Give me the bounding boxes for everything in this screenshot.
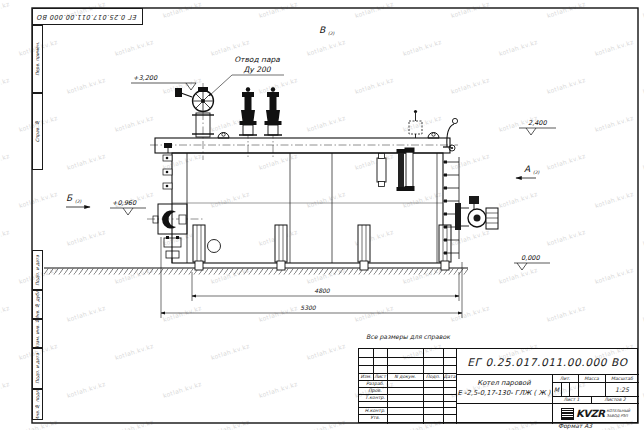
- dimension-5300: 5300: [161, 237, 462, 318]
- reference-note: Все размеры для справок: [366, 333, 450, 340]
- margin-box-perv-primen: Перв. примен.: [32, 25, 43, 93]
- svg-text:Ду 200: Ду 200: [244, 65, 272, 74]
- drawing-sheet: kotlah.kv.kzkotlah.kv.kzkotlah.kv.kzkotl…: [0, 0, 644, 430]
- svg-text:4800: 4800: [314, 287, 330, 294]
- top-stamp-number: ЕГ 0.25.017.011.00.000 ВО: [37, 13, 137, 21]
- svg-text:Отвод пара: Отвод пара: [234, 55, 280, 64]
- row-utv: Утв.: [359, 414, 389, 421]
- svg-text:+0,960: +0,960: [112, 199, 137, 207]
- manhole: [208, 240, 221, 253]
- org-subtitle: КОТЕЛЬНЫЙ ЗАВОД РЭП: [606, 409, 630, 417]
- margin-box-inv-dubl: Инв. № дубл.: [32, 290, 43, 319]
- sheet-total: Листов 2: [591, 396, 639, 403]
- organization-cell: KVZR КОТЕЛЬНЫЙ ЗАВОД РЭП: [552, 403, 639, 424]
- elevation-3200: +3,200: [131, 74, 196, 90]
- svg-text:(2): (2): [533, 170, 540, 175]
- product-name: Котел паровой Е -2,5-0,17-130- ГЛЖ ( Ж ): [456, 374, 552, 403]
- svg-text:2,400: 2,400: [528, 119, 547, 127]
- document-number: ЕГ 0.25.017.011.00.000 ВО: [456, 349, 639, 374]
- row-prov: Пров.: [359, 387, 389, 394]
- kvzr-logo-icon: [561, 408, 574, 420]
- kvzr-logo-text: KVZR: [576, 408, 604, 419]
- lit-value: М: [552, 382, 561, 396]
- col-ndokum: N докум.: [387, 373, 423, 380]
- steam-outlet-valve: [175, 87, 214, 137]
- sheet-number: Лист 1: [552, 396, 591, 403]
- margin-box-podp-data-2: Подп. и дата: [32, 348, 43, 389]
- feed-pump: [455, 196, 498, 230]
- svg-text:(2): (2): [328, 31, 335, 36]
- svg-text:Б: Б: [66, 193, 73, 203]
- format-label: Формат А3: [558, 422, 592, 429]
- col-podp: Подп.: [423, 373, 443, 380]
- elevation-0960: +0,960: [110, 199, 146, 215]
- lit-header: Лит.: [552, 374, 578, 382]
- view-label-B-top: В (2): [319, 25, 335, 36]
- elevation-0000: 0,000: [514, 254, 550, 270]
- svg-text:0,000: 0,000: [521, 254, 540, 262]
- mass-header: Масса: [578, 374, 605, 382]
- col-izm: Изм.: [359, 373, 373, 380]
- ground-line: [44, 268, 468, 275]
- elevation-2400: 2,400: [519, 119, 556, 135]
- top-rotated-stamp: ЕГ 0.25.017.011.00.000 ВО: [32, 8, 143, 25]
- col-data: Дата: [443, 373, 456, 380]
- svg-text:5300: 5300: [300, 304, 316, 311]
- view-label-A-right: А (2): [516, 164, 540, 178]
- row-razrab: Разраб.: [359, 380, 389, 387]
- margin-box-sprav-no: Справ. №: [32, 93, 43, 170]
- svg-text:+3,200: +3,200: [133, 74, 158, 82]
- svg-text:(2): (2): [75, 199, 82, 204]
- scale-value: 1:25: [605, 382, 639, 396]
- scale-header: Масштаб: [605, 374, 639, 382]
- title-block: Изм. Лист N докум. Подп. Дата Разраб. Пр…: [358, 348, 638, 423]
- safety-valves: [239, 87, 282, 135]
- margin-box-vzam-inv: Взам. инв. №: [32, 319, 43, 348]
- burner-assembly: [153, 155, 187, 263]
- margin-box-inv-podl: Инв. № подл.: [32, 389, 43, 420]
- top-right-fittings: [164, 110, 458, 153]
- row-tkontr: Т.контр.: [359, 394, 389, 401]
- water-level-gauges: [377, 148, 415, 192]
- view-label-B-left: Б (2): [66, 193, 90, 207]
- margin-box-podp-data-1: Подп. и дата: [32, 250, 43, 290]
- dimension-4800: 4800: [192, 272, 459, 301]
- col-list: Лист: [373, 373, 387, 380]
- svg-text:В: В: [319, 25, 326, 35]
- row-nkontr: Н.контр.: [359, 407, 389, 414]
- svg-text:А: А: [524, 164, 531, 174]
